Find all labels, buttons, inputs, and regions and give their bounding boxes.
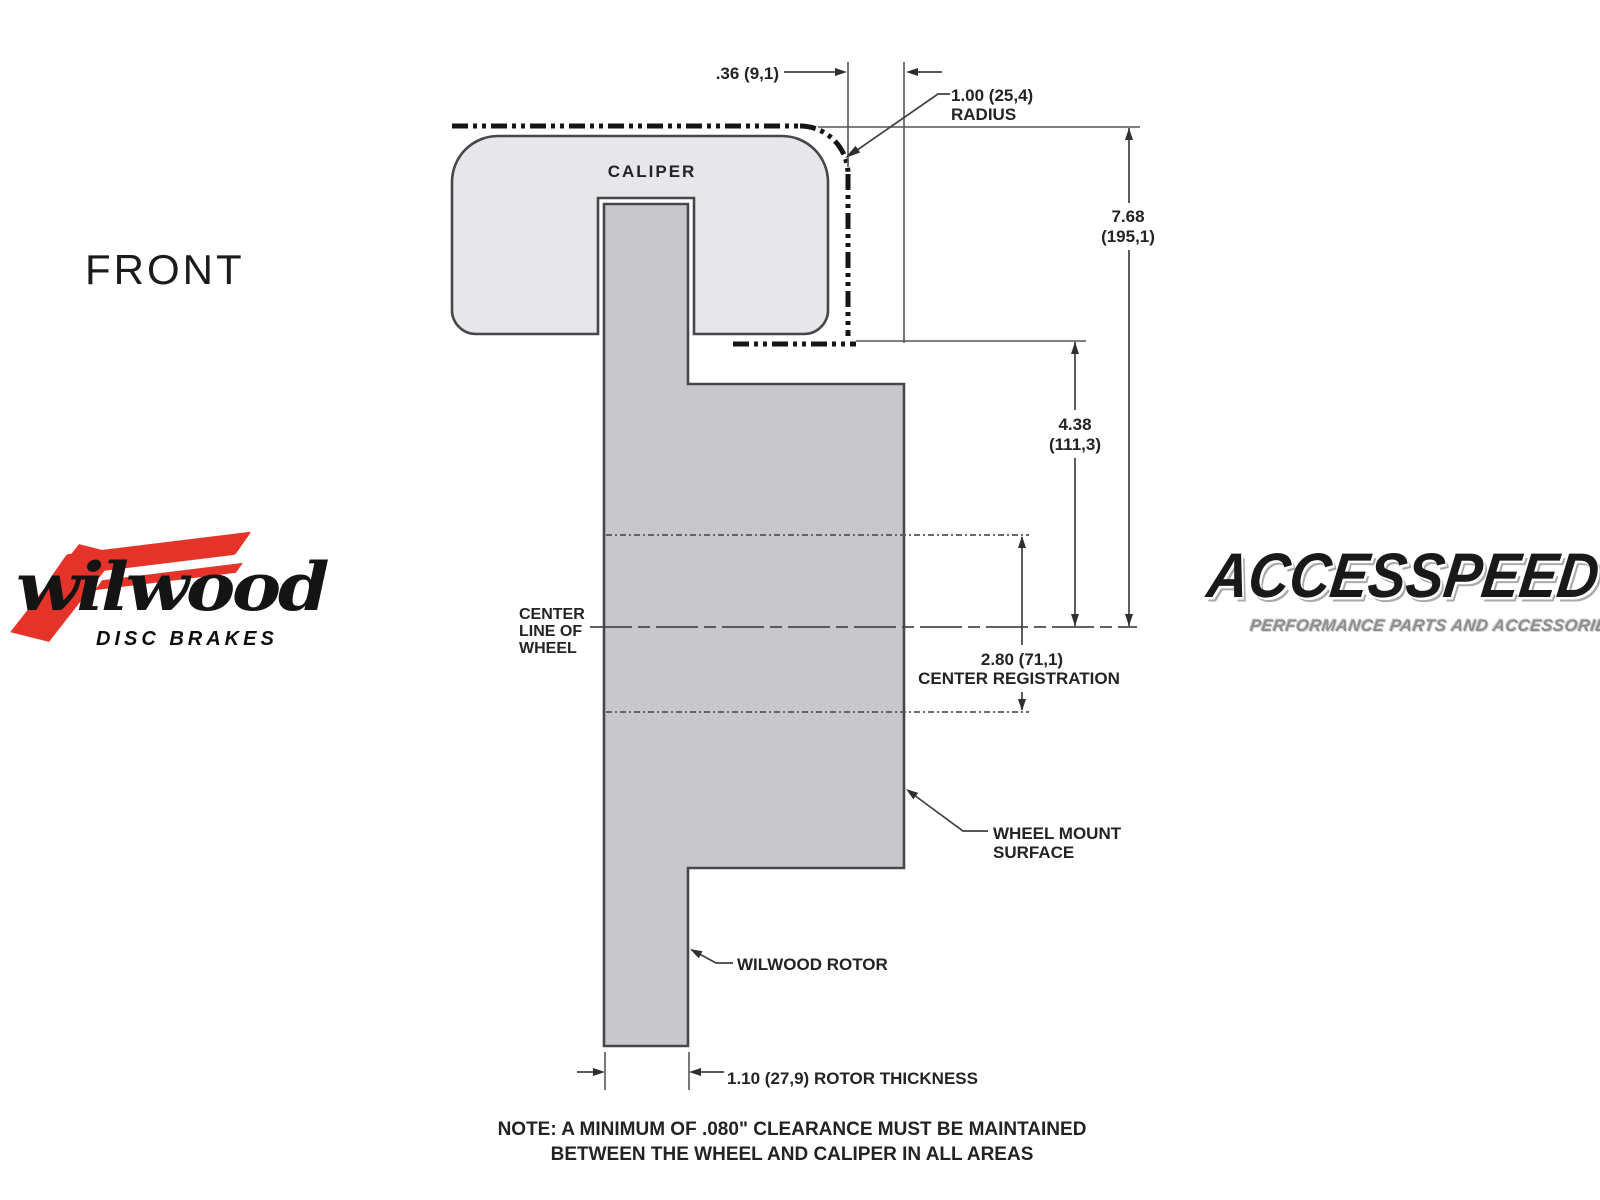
arrowhead bbox=[1125, 128, 1133, 140]
wilwood-logo: wilwood DISC BRAKES bbox=[14, 528, 336, 662]
caliper-clearance-diagram: .36 (9,1) 1.00 (25,4) RADIUS 7.68 (195,1… bbox=[0, 0, 1600, 1200]
caliper-label: CALIPER bbox=[608, 162, 697, 181]
note-line-2: BETWEEN THE WHEEL AND CALIPER IN ALL ARE… bbox=[551, 1144, 1034, 1165]
dim-clearance-text: .36 (9,1) bbox=[716, 64, 779, 83]
arrowhead bbox=[689, 1068, 701, 1076]
dim-rotor-thickness: 1.10 (27,9) ROTOR THICKNESS bbox=[577, 1068, 978, 1088]
rotor-thickness-text: 1.10 (27,9) ROTOR THICKNESS bbox=[727, 1069, 978, 1088]
center-registration-value: 2.80 (71,1) bbox=[981, 650, 1063, 669]
arrowhead bbox=[1125, 614, 1133, 626]
arrowhead bbox=[1071, 614, 1079, 626]
radius-value-text: 1.00 (25,4) bbox=[951, 86, 1033, 105]
center-registration-label: CENTER REGISTRATION bbox=[918, 669, 1120, 688]
centerline-text-1: CENTER bbox=[519, 606, 585, 623]
callout-wheel-mount-surface: WHEEL MOUNT SURFACE bbox=[906, 789, 1122, 862]
arrowhead bbox=[835, 68, 847, 76]
centerline-text-3: WHEEL bbox=[519, 640, 577, 657]
wheel-mount-text-1: WHEEL MOUNT bbox=[993, 824, 1122, 843]
caliper-to-center-metric: (111,3) bbox=[1049, 435, 1101, 454]
wilwood-wordmark: wilwood bbox=[16, 548, 326, 626]
overall-height-metric: (195,1) bbox=[1101, 227, 1155, 246]
arrowhead bbox=[1018, 699, 1026, 711]
callout-center-line-of-wheel: CENTER LINE OF WHEEL bbox=[519, 606, 585, 657]
view-label: FRONT bbox=[85, 246, 245, 293]
arrowhead bbox=[1071, 342, 1079, 354]
accesspeed-logo: ACCESSPEED PERFORMANCE PARTS AND ACCESSO… bbox=[1208, 540, 1600, 636]
dim-caliper-wheel-clearance: .36 (9,1) bbox=[716, 64, 942, 83]
dim-overall-height: 7.68 (195,1) bbox=[1101, 128, 1155, 626]
wheel-mount-text-2: SURFACE bbox=[993, 843, 1074, 862]
callout-wilwood-rotor: WILWOOD ROTOR bbox=[690, 949, 888, 974]
dim-corner-radius: 1.00 (25,4) RADIUS bbox=[845, 86, 1033, 158]
arrowhead bbox=[906, 789, 918, 799]
arrowhead bbox=[906, 68, 918, 76]
note-line-1: NOTE: A MINIMUM OF .080" CLEARANCE MUST … bbox=[498, 1119, 1087, 1140]
centerline-text-2: LINE OF bbox=[519, 623, 582, 640]
rotor-callout-text: WILWOOD ROTOR bbox=[737, 955, 888, 974]
arrowhead bbox=[593, 1068, 605, 1076]
radius-word-text: RADIUS bbox=[951, 105, 1016, 124]
arrowhead bbox=[1018, 536, 1026, 548]
wilwood-tagline: DISC BRAKES bbox=[96, 628, 278, 651]
accesspeed-wordmark: ACCESSPEED bbox=[1203, 540, 1565, 612]
dim-caliper-to-center: 4.38 (111,3) bbox=[1049, 342, 1101, 626]
caliper-to-center-value: 4.38 bbox=[1058, 415, 1091, 434]
dim-center-registration: 2.80 (71,1) CENTER REGISTRATION bbox=[918, 536, 1120, 711]
accesspeed-tagline: PERFORMANCE PARTS AND ACCESSORIES bbox=[1249, 617, 1600, 636]
overall-height-value: 7.68 bbox=[1111, 207, 1144, 226]
arrowhead bbox=[690, 949, 703, 958]
